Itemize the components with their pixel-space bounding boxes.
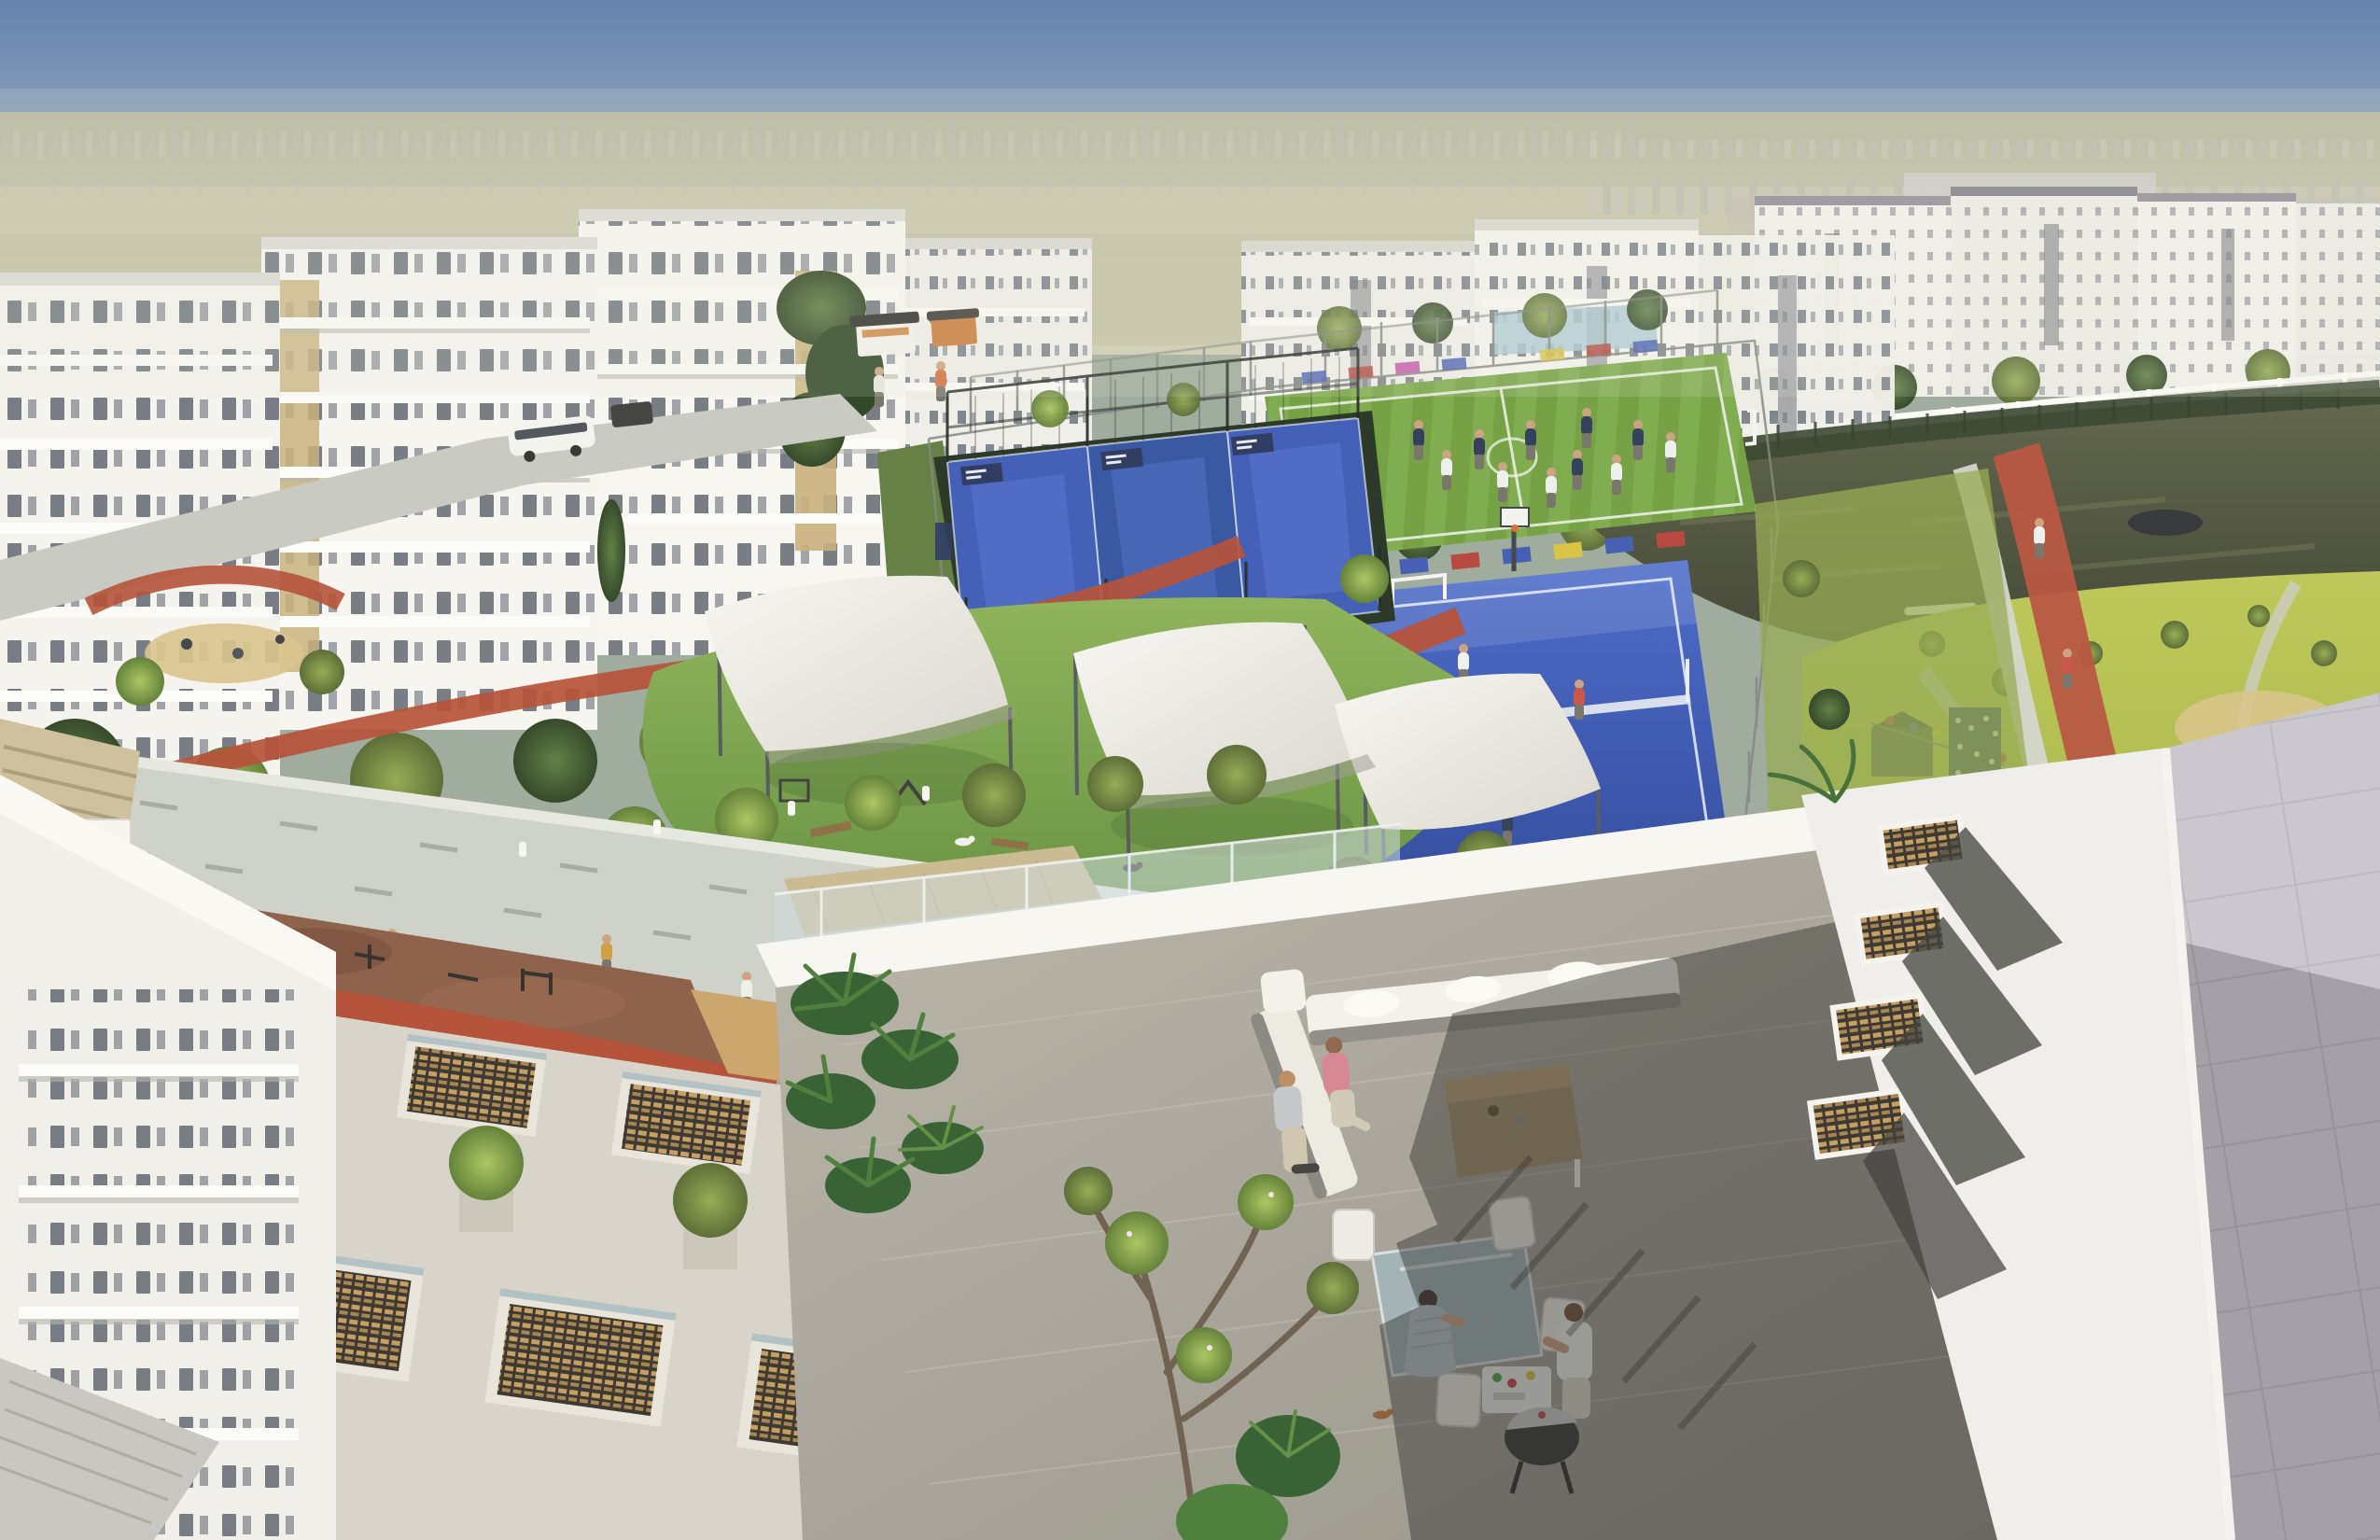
aerial-render <box>0 0 2380 1540</box>
coffee-kiosk <box>849 312 921 357</box>
orange-kiosk <box>927 308 982 347</box>
